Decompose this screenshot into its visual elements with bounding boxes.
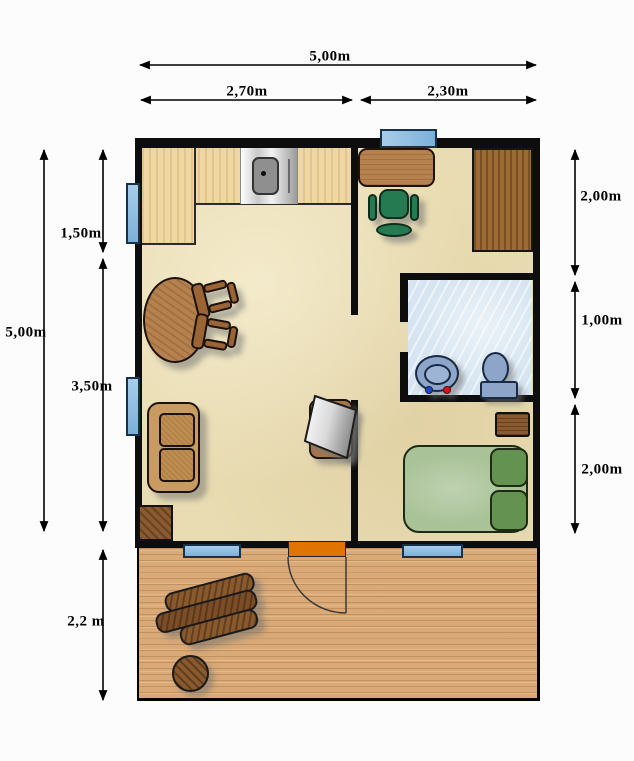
stove-cooktop (252, 157, 279, 195)
wardrobe (472, 148, 533, 252)
sofa (147, 402, 200, 493)
sofa-cushion (159, 448, 195, 482)
stove-handle (288, 159, 290, 193)
bathroom-wall-top (400, 273, 533, 280)
pillow (490, 490, 528, 531)
entry-door (288, 541, 346, 557)
sofa-cushion (159, 413, 195, 447)
tv-stand (309, 399, 353, 459)
dim-left-kitchen: 1,50m (60, 226, 101, 243)
wall-right (533, 138, 540, 548)
window-bedroom (402, 544, 463, 558)
wall-partition-upper (351, 148, 358, 315)
chair-arm (202, 279, 227, 294)
washbasin-basin (424, 364, 451, 385)
chair-arm (206, 318, 231, 331)
dim-right-office: 2,00m (580, 189, 621, 206)
window-kitchen (126, 183, 140, 244)
dim-top-right: 2,30m (427, 84, 468, 101)
dim-top-total: 5,00m (309, 49, 350, 66)
dining-set (138, 272, 248, 367)
wall-top (135, 138, 540, 148)
office-chair (368, 186, 420, 238)
dining-chair (190, 312, 240, 357)
office-chair-seat (379, 189, 409, 219)
dim-right-bedroom: 2,00m (581, 462, 622, 479)
stove-knob (261, 171, 266, 176)
dim-top-left: 2,70m (226, 84, 267, 101)
nightstand (495, 412, 530, 437)
chair-arm (203, 338, 228, 351)
office-chair-armrest-right (410, 194, 419, 221)
dim-left-living: 3,50m (71, 379, 112, 396)
corner-cabinet (138, 505, 173, 541)
floor-plan-canvas: 5,00m 2,70m 2,30m 5,00m 1,50m 3,50m 2,2 … (0, 0, 634, 761)
bathroom-wall-left-upper (400, 273, 408, 322)
dim-left-total: 5,00m (5, 325, 46, 342)
pillow (490, 448, 528, 487)
hot-tap-icon (443, 386, 451, 394)
toilet-tank (480, 381, 518, 399)
desk (358, 148, 435, 187)
window-office (380, 129, 437, 148)
kitchen-counter-left (142, 148, 196, 245)
office-chair-backrest (376, 223, 412, 237)
dim-left-deck: 2,2 m (67, 614, 105, 631)
counter-divider (194, 148, 196, 204)
dim-right-bathroom: 1,00m (581, 313, 622, 330)
window-living-left (126, 377, 140, 436)
office-chair-armrest-left (368, 194, 377, 221)
cold-tap-icon (425, 386, 433, 394)
window-living-bottom (183, 544, 241, 558)
chair-arm (208, 299, 233, 314)
round-table (172, 655, 209, 692)
